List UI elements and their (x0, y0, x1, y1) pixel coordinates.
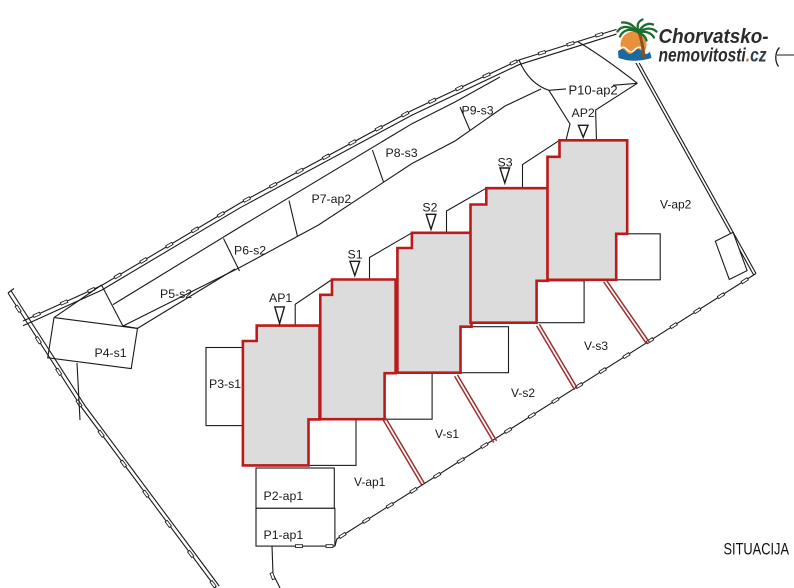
svg-text:P9-s3: P9-s3 (462, 104, 494, 118)
svg-text:P8-s3: P8-s3 (386, 146, 418, 160)
svg-text:P5-s2: P5-s2 (160, 287, 192, 301)
svg-text:V-s1: V-s1 (435, 427, 459, 441)
svg-text:P6-s2: P6-s2 (234, 244, 266, 258)
svg-text:P1-ap1: P1-ap1 (264, 528, 304, 542)
svg-text:P4-s1: P4-s1 (95, 346, 127, 360)
svg-text:V-ap2: V-ap2 (660, 198, 692, 212)
svg-text:P10-ap2: P10-ap2 (569, 83, 618, 98)
svg-text:AP2: AP2 (572, 106, 595, 120)
svg-text:SITUACIJA: SITUACIJA (724, 541, 790, 559)
svg-text:P2-ap1: P2-ap1 (264, 489, 304, 503)
svg-text:nemovitosti.cz: nemovitosti.cz (659, 45, 767, 67)
svg-text:V-s2: V-s2 (511, 386, 535, 400)
svg-text:S1: S1 (348, 248, 363, 262)
svg-text:P7-ap2: P7-ap2 (312, 192, 352, 206)
svg-text:V-s3: V-s3 (584, 339, 608, 353)
svg-text:S2: S2 (422, 201, 437, 215)
svg-text:P3-s1: P3-s1 (209, 377, 241, 391)
svg-text:S3: S3 (498, 156, 513, 170)
svg-text:AP1: AP1 (269, 291, 292, 305)
svg-text:V-ap1: V-ap1 (354, 475, 386, 489)
